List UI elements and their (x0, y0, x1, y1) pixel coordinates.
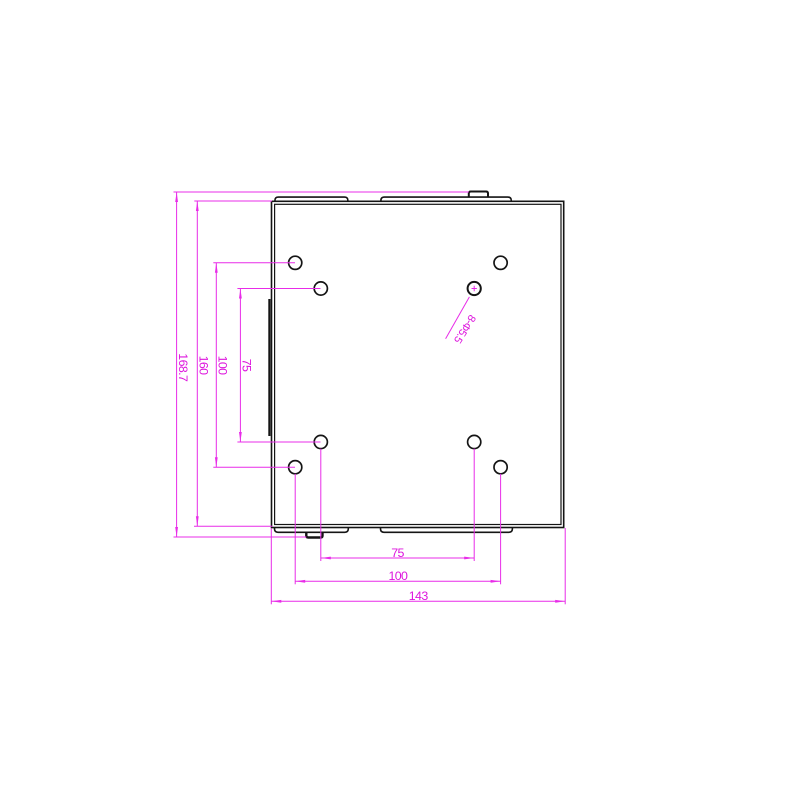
svg-text:75: 75 (391, 546, 404, 560)
svg-text:100: 100 (388, 569, 408, 583)
svg-text:75: 75 (240, 359, 254, 372)
svg-text:100: 100 (216, 356, 230, 376)
svg-text:143: 143 (409, 589, 429, 603)
svg-text:168.7: 168.7 (176, 353, 190, 382)
svg-text:160: 160 (197, 356, 211, 376)
